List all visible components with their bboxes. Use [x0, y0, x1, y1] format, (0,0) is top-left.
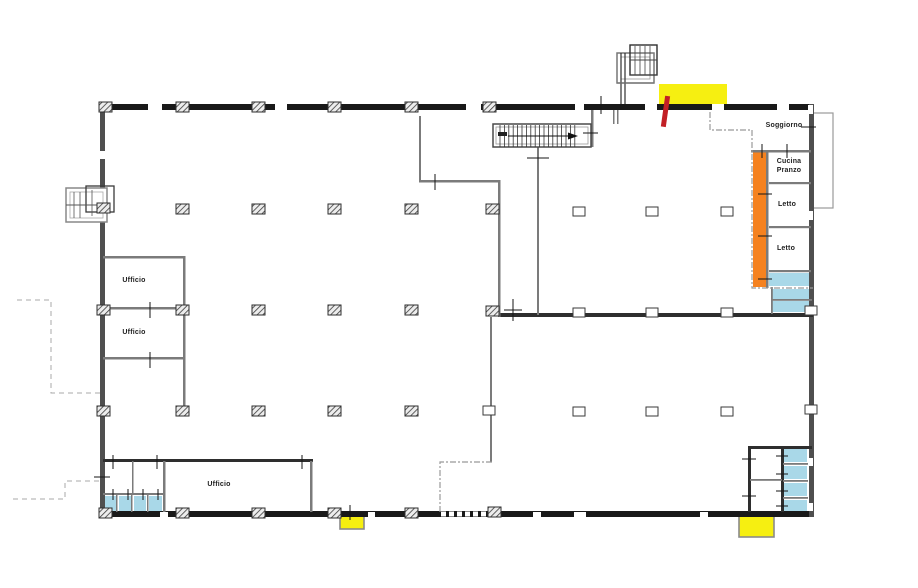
hatched-column [176, 406, 189, 416]
room-label-letto-2: Letto [763, 244, 809, 253]
wall-segment [419, 116, 421, 182]
stair-start-mark [498, 132, 507, 136]
highlight-cyan [134, 496, 146, 512]
open-column [573, 207, 585, 216]
hatched-column [328, 305, 341, 315]
wall-segment [766, 150, 769, 288]
hatched-column [328, 102, 341, 112]
floor-plan: SoggiornoCucina PranzoLettoLettoUfficioU… [0, 0, 918, 588]
hatched-column [99, 508, 112, 518]
open-column [573, 407, 585, 416]
window-gap [533, 512, 541, 517]
wall-segment [769, 226, 811, 228]
hatched-column [176, 305, 189, 315]
open-column [805, 306, 817, 315]
room-label-ufficio-3: Ufficio [189, 480, 249, 489]
window-gap [645, 104, 657, 110]
highlight-cyan [784, 466, 807, 479]
highlight-cyan [772, 289, 811, 300]
open-column [805, 405, 817, 414]
open-column [646, 407, 658, 416]
unit-boundary-dash [440, 462, 492, 513]
wall-segment [769, 182, 811, 184]
hatched-column [486, 306, 499, 316]
hatched-column [483, 102, 496, 112]
hatched-column [328, 204, 341, 214]
wall-segment [116, 494, 118, 512]
window-gap [808, 458, 813, 466]
highlight-cyan [119, 496, 131, 512]
wall-segment [419, 180, 500, 183]
wall-segment [748, 446, 812, 449]
wall-segment [783, 480, 808, 482]
wall-segment [783, 463, 808, 465]
hatched-column [252, 305, 265, 315]
hatched-column [97, 406, 110, 416]
room-label-cucina-pranzo: Cucina Pranzo [772, 157, 806, 175]
wall-segment [490, 317, 492, 462]
open-column [721, 308, 733, 317]
property-line-dash [17, 300, 103, 393]
highlight-cyan [784, 483, 807, 496]
highlight-orange [753, 152, 767, 287]
open-column [721, 207, 733, 216]
wall-segment [498, 180, 501, 317]
window-gap [100, 151, 105, 159]
hatched-column [97, 203, 110, 213]
property-line-dash [13, 481, 103, 499]
room-label-ufficio-1: Ufficio [104, 276, 164, 285]
window-gap [808, 211, 813, 220]
wall-segment [147, 494, 149, 512]
window-gap [777, 104, 789, 110]
wall-segment [613, 110, 615, 124]
window-gap [574, 512, 586, 517]
wall-segment [163, 461, 166, 512]
wall-segment [771, 299, 812, 301]
hatched-column [405, 305, 418, 315]
hatched-column [252, 204, 265, 214]
wall-segment [617, 110, 619, 124]
hatched-column [488, 507, 501, 517]
highlight-yellow [739, 514, 774, 537]
hatched-column [176, 204, 189, 214]
wall-segment [131, 494, 133, 512]
hatched-column [97, 305, 110, 315]
room-label-letto-1: Letto [764, 200, 810, 209]
open-column [646, 308, 658, 317]
window-gap [466, 104, 481, 110]
hatched-column [252, 406, 265, 416]
hatched-column [328, 406, 341, 416]
highlight-cyan [149, 496, 162, 512]
wall-segment [183, 256, 186, 413]
open-column [646, 207, 658, 216]
window-gap [160, 512, 168, 517]
wall-segment [751, 150, 811, 153]
hatched-column [328, 508, 341, 518]
room-label-ufficio-2: Ufficio [104, 328, 164, 337]
hatched-column [252, 508, 265, 518]
wall-segment [103, 459, 313, 462]
open-column [721, 407, 733, 416]
wall-segment [310, 461, 313, 512]
wall-segment [132, 461, 134, 494]
wall-segment [103, 357, 185, 360]
wall-segment [100, 104, 813, 110]
window-gap [808, 105, 813, 114]
window-gap [712, 104, 724, 110]
window-gap [275, 104, 287, 110]
hatched-column [405, 406, 418, 416]
floor-plan-canvas [0, 0, 918, 588]
hatched-column [405, 204, 418, 214]
wall-segment [769, 270, 811, 272]
detail-line [617, 53, 654, 83]
wall-segment [537, 146, 539, 315]
wall-segment [103, 493, 164, 495]
hatched-column [405, 102, 418, 112]
room-label-soggiorno: Soggiorno [752, 121, 816, 130]
wall-segment [783, 497, 808, 499]
hatched-column [176, 102, 189, 112]
highlight-cyan [769, 273, 812, 286]
window-gap [368, 512, 375, 517]
open-column [483, 406, 495, 415]
wall-segment [103, 256, 185, 259]
window-gap [148, 104, 162, 110]
window-gap [808, 503, 813, 511]
hatched-column [252, 102, 265, 112]
wall-segment [103, 307, 185, 310]
hatched-column [405, 508, 418, 518]
window-gap [575, 104, 584, 110]
hatched-column [176, 508, 189, 518]
hatched-column [99, 102, 112, 112]
window-gap [700, 512, 708, 517]
hatched-column [486, 204, 499, 214]
open-column [573, 308, 585, 317]
wall-segment [750, 479, 782, 481]
